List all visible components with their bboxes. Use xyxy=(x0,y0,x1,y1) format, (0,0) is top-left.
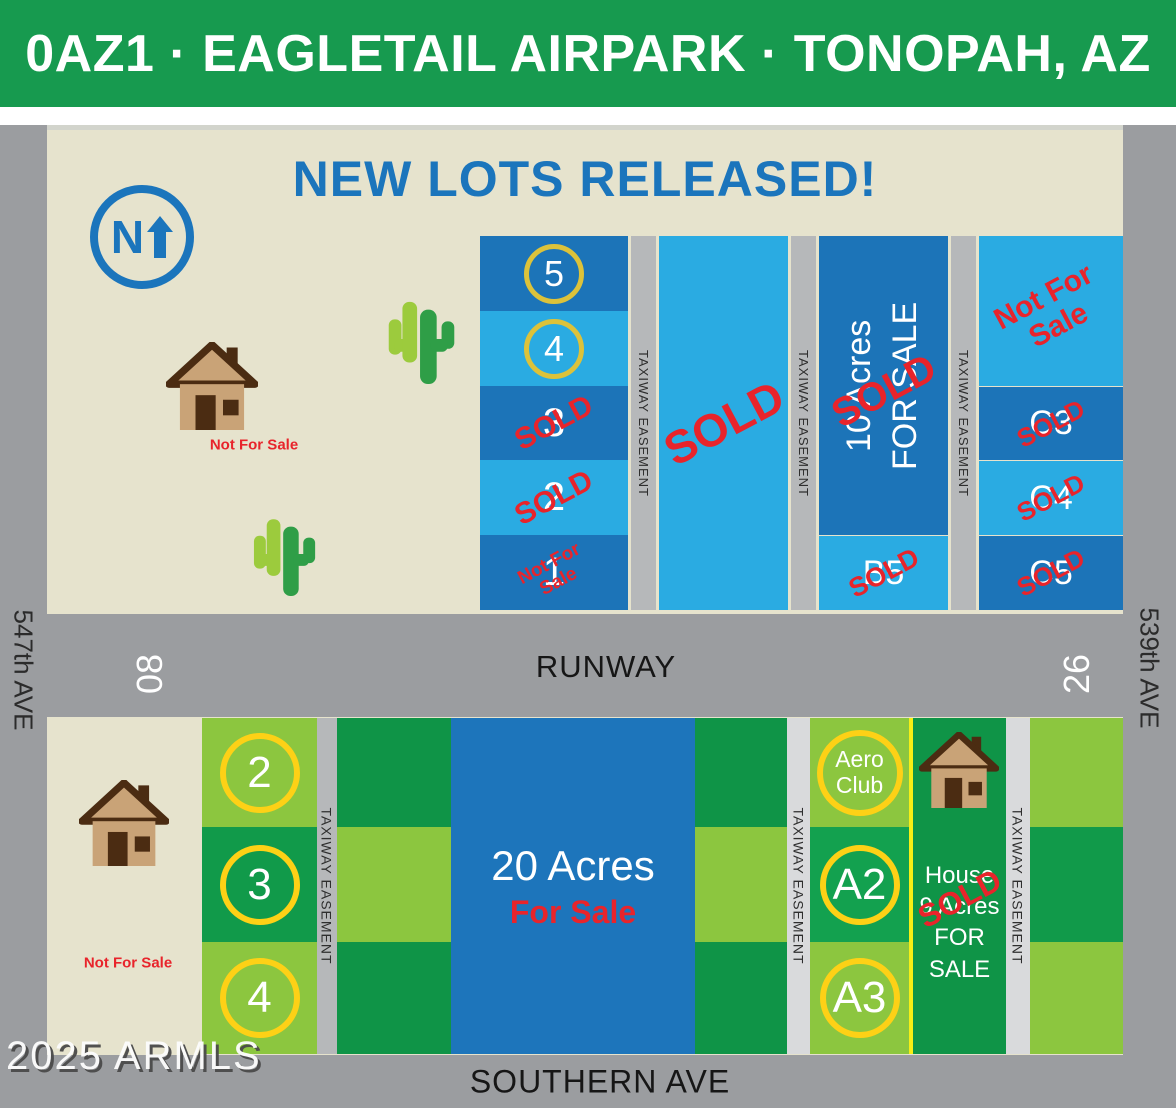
runway-label: RUNWAY xyxy=(536,649,676,685)
lot-5: 5 xyxy=(480,236,628,311)
green-lot xyxy=(695,942,787,1054)
green-lot xyxy=(337,718,451,827)
taxiway-easement-strip: TAXIWAY EASEMENT xyxy=(631,236,656,610)
lot-4: 4 xyxy=(480,311,628,386)
taxiway-easement-strip: TAXIWAY EASEMENT xyxy=(1006,718,1030,1054)
taxiway-easement-strip: TAXIWAY EASEMENT xyxy=(317,718,337,1054)
new-lots-banner: NEW LOTS RELEASED! xyxy=(47,150,1123,208)
north-house-not-for-sale-label: Not For Sale xyxy=(210,437,298,454)
runway-number-east: 26 xyxy=(1056,654,1098,694)
lot-1: 1 Not For Sale xyxy=(480,535,628,610)
south-lot-4-circle: 4 xyxy=(220,958,300,1038)
lot-a3: A3 xyxy=(810,942,909,1054)
street-label-539th-ave: 539th AVE xyxy=(1134,608,1165,729)
airpark-lot-map-flyer: 0AZ1 · EAGLETAIL AIRPARK · TONOPAH, AZ N… xyxy=(0,0,1176,1108)
lot-a2-label: A2 xyxy=(833,860,887,910)
aero-club-lot: Aero Club xyxy=(810,718,909,827)
green-lot xyxy=(337,942,451,1054)
not-for-sale-stamp: Not For Sale xyxy=(515,539,593,606)
aero-club-line2: Club xyxy=(836,773,883,799)
cactus-icon xyxy=(385,294,459,384)
house-lot-line3: FOR SALE xyxy=(929,924,990,982)
street-label-southern-ave: SOUTHERN AVE xyxy=(470,1064,730,1101)
taxiway-easement-strip: TAXIWAY EASEMENT xyxy=(791,236,816,610)
south-lot-3: 3 xyxy=(202,827,317,942)
header-banner: 0AZ1 · EAGLETAIL AIRPARK · TONOPAH, AZ xyxy=(0,0,1176,107)
north-indicator: N xyxy=(90,185,194,289)
south-lot-3-label: 3 xyxy=(247,860,271,910)
north-arrow-icon xyxy=(147,216,173,258)
house-nine-acres-lot: House 9 Acres FOR SALE SOLD xyxy=(913,718,1006,1054)
sold-stamp: SOLD xyxy=(659,372,788,475)
house-icon xyxy=(79,780,169,866)
south-lot-2: 2 xyxy=(202,718,317,827)
runway-number-west: 08 xyxy=(129,654,171,694)
south-lot-4-label: 4 xyxy=(247,973,271,1023)
house-icon xyxy=(919,732,999,808)
twenty-acres-line2: For Sale xyxy=(510,894,636,931)
lot-3: 3 SOLD xyxy=(480,386,628,460)
south-lot-2-label: 2 xyxy=(247,748,271,798)
cactus-icon xyxy=(251,512,319,596)
taxiway-easement-label: TAXIWAY EASEMENT xyxy=(1010,807,1026,964)
green-lot xyxy=(1030,827,1123,942)
lot-4-circle: 4 xyxy=(524,319,584,379)
ten-acres-lot: 10 Acres FOR SALE SOLD xyxy=(819,236,948,535)
green-lot xyxy=(1030,942,1123,1054)
armls-watermark: 2025 ARMLS xyxy=(6,1034,262,1079)
lot-b5: B5 SOLD xyxy=(819,536,948,610)
green-lot xyxy=(1030,718,1123,827)
lot-a3-label: A3 xyxy=(833,973,887,1023)
taxiway-easement-label: TAXIWAY EASEMENT xyxy=(319,807,335,964)
lot-a3-circle: A3 xyxy=(820,958,900,1038)
lot-c5: C5 SOLD xyxy=(979,536,1123,610)
twenty-acres-lot: 20 Acres For Sale xyxy=(451,718,695,1054)
lot-5-circle: 5 xyxy=(524,244,584,304)
taxiway-easement-label: TAXIWAY EASEMENT xyxy=(791,807,807,964)
taxiway-easement-label: TAXIWAY EASEMENT xyxy=(796,350,811,497)
header-title: 0AZ1 · EAGLETAIL AIRPARK · TONOPAH, AZ xyxy=(25,24,1150,84)
taxiway-easement-strip: TAXIWAY EASEMENT xyxy=(787,718,810,1054)
lot-c4: C4 SOLD xyxy=(979,461,1123,535)
sold-stamp: SOLD xyxy=(844,543,924,603)
c-block-not-for-sale-lot: Not For Sale xyxy=(979,236,1123,386)
south-lot-3-circle: 3 xyxy=(220,845,300,925)
lot-c3: C3 SOLD xyxy=(979,387,1123,460)
southwest-house-not-for-sale-label: Not For Sale xyxy=(84,955,172,972)
aero-club-line1: Aero xyxy=(835,747,884,773)
lot-4-label: 4 xyxy=(544,328,564,370)
aero-club-circle: Aero Club xyxy=(817,730,903,816)
lot-2: 2 SOLD xyxy=(480,460,628,535)
taxiway-easement-label: TAXIWAY EASEMENT xyxy=(636,350,651,497)
house-icon xyxy=(166,342,258,430)
south-lot-2-circle: 2 xyxy=(220,733,300,813)
street-label-547th-ave: 547th AVE xyxy=(8,610,39,731)
green-lot xyxy=(337,827,451,942)
lot-a2-circle: A2 xyxy=(820,845,900,925)
twenty-acres-line1: 20 Acres xyxy=(491,842,654,890)
map-top-border xyxy=(47,125,1123,130)
green-lot xyxy=(695,718,787,827)
green-lot xyxy=(695,827,787,942)
lot-a2: A2 xyxy=(810,827,909,942)
taxiway-easement-strip: TAXIWAY EASEMENT xyxy=(951,236,976,610)
not-for-sale-stamp: Not For Sale xyxy=(989,258,1113,364)
north-letter: N xyxy=(111,210,144,264)
large-sold-lot: SOLD xyxy=(659,236,788,610)
taxiway-easement-label: TAXIWAY EASEMENT xyxy=(956,350,971,497)
lot-5-label: 5 xyxy=(544,253,564,295)
